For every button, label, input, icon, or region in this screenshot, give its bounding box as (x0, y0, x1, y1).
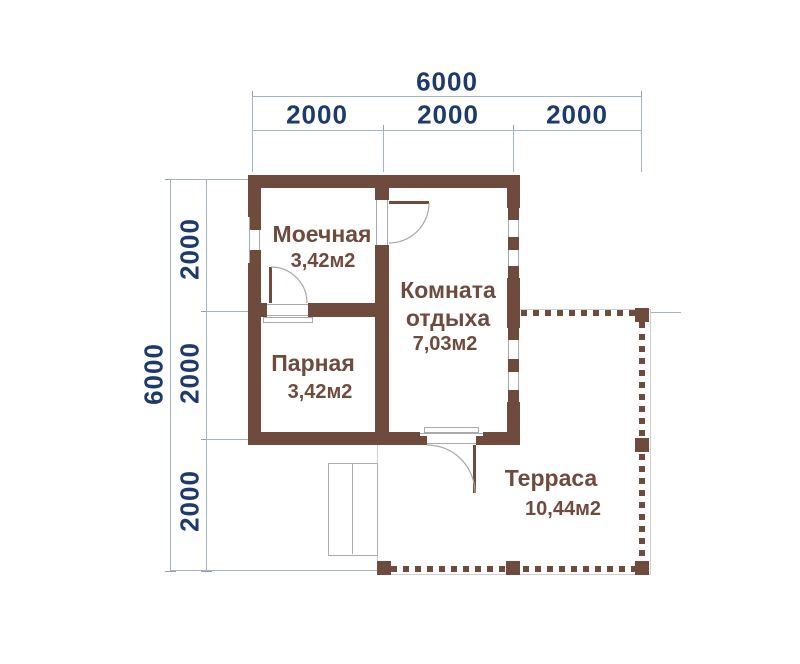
top-total-dim: 6000 (416, 67, 478, 98)
top-seg-dim-2: 2000 (417, 100, 479, 131)
room-area-terrace: 10,44м2 (525, 498, 601, 521)
floor-plan: 6000 2000 2000 2000 6000 2000 2000 2000 (0, 0, 800, 664)
wall-top (248, 175, 520, 188)
extension-line (650, 312, 681, 313)
extension-line (513, 130, 514, 172)
extension-line (641, 96, 642, 172)
door-arc-terrace (427, 445, 475, 493)
left-seg-dim-3: 2000 (175, 470, 206, 532)
door-jamb-block (476, 436, 483, 445)
door-leaf-steamroom (269, 267, 272, 303)
door-jamb-block (261, 303, 267, 317)
terrace-post (635, 561, 649, 575)
room-area-steamroom: 3,42м2 (288, 381, 353, 404)
wall-right-seg1 (507, 188, 520, 208)
extension-line (383, 130, 384, 172)
door-leaf-restroom (389, 201, 429, 204)
door-jamb-line (265, 304, 311, 305)
door-jamb-line (420, 433, 483, 434)
wall-bottom-right (483, 432, 520, 445)
window-block (508, 237, 519, 250)
door-sill (424, 427, 479, 433)
top-seg-dim-1: 2000 (286, 100, 348, 131)
terrace-post (635, 438, 649, 452)
window-block (508, 390, 519, 402)
terrace-post (377, 561, 391, 575)
door-jamb-block (308, 303, 314, 317)
wall-left-upper (248, 188, 261, 217)
wall-bottom-left (248, 432, 420, 445)
door-arc-restroom (389, 203, 429, 243)
left-seg-dim-1: 2000 (175, 218, 206, 280)
dim-tick (201, 571, 212, 572)
top-seg-dim-3: 2000 (546, 100, 608, 131)
left-total-dim: 6000 (139, 343, 170, 405)
window-block (508, 208, 519, 220)
room-label-washroom: Моечная (273, 220, 372, 248)
room-area-washroom: 3,42м2 (291, 250, 356, 273)
terrace-steps (328, 463, 378, 556)
extension-line (170, 570, 377, 571)
door-leaf-terrace (473, 445, 476, 493)
window-block (508, 359, 519, 372)
left-dim-seg-line (206, 179, 207, 572)
extension-line (170, 179, 248, 180)
extension-line (206, 311, 248, 312)
terrace-post (506, 561, 520, 575)
extension-line (206, 439, 248, 440)
room-label-restroom: Комната отдыха (385, 276, 511, 332)
window-block (250, 217, 261, 230)
door-jamb-block (420, 436, 427, 445)
door-jamb-line (376, 200, 377, 245)
window-block (250, 250, 261, 263)
wall-interior-vertical (375, 245, 389, 432)
room-label-terrace: Терраса (505, 464, 597, 492)
room-label-steamroom: Парная (271, 349, 354, 377)
door-jamb-line (387, 200, 388, 245)
door-swing-arcs (0, 0, 800, 664)
terrace-dashed-edge-top (521, 310, 635, 316)
terrace-outline-right (650, 309, 651, 575)
wall-left-lower (248, 263, 261, 432)
extension-line (252, 96, 253, 172)
wall-right-seg3 (507, 402, 520, 432)
door-jamb-line (265, 315, 311, 316)
dim-tick (165, 571, 176, 572)
door-sill (263, 317, 313, 323)
door-jamb-line (420, 443, 483, 444)
wall-interior-vertical-jamb (375, 188, 389, 200)
left-dim-total-line (170, 179, 171, 572)
room-area-restroom: 7,03м2 (413, 333, 478, 356)
left-seg-dim-2: 2000 (175, 342, 206, 404)
terrace-post (635, 308, 649, 322)
terrace-steps-divider (352, 463, 353, 554)
